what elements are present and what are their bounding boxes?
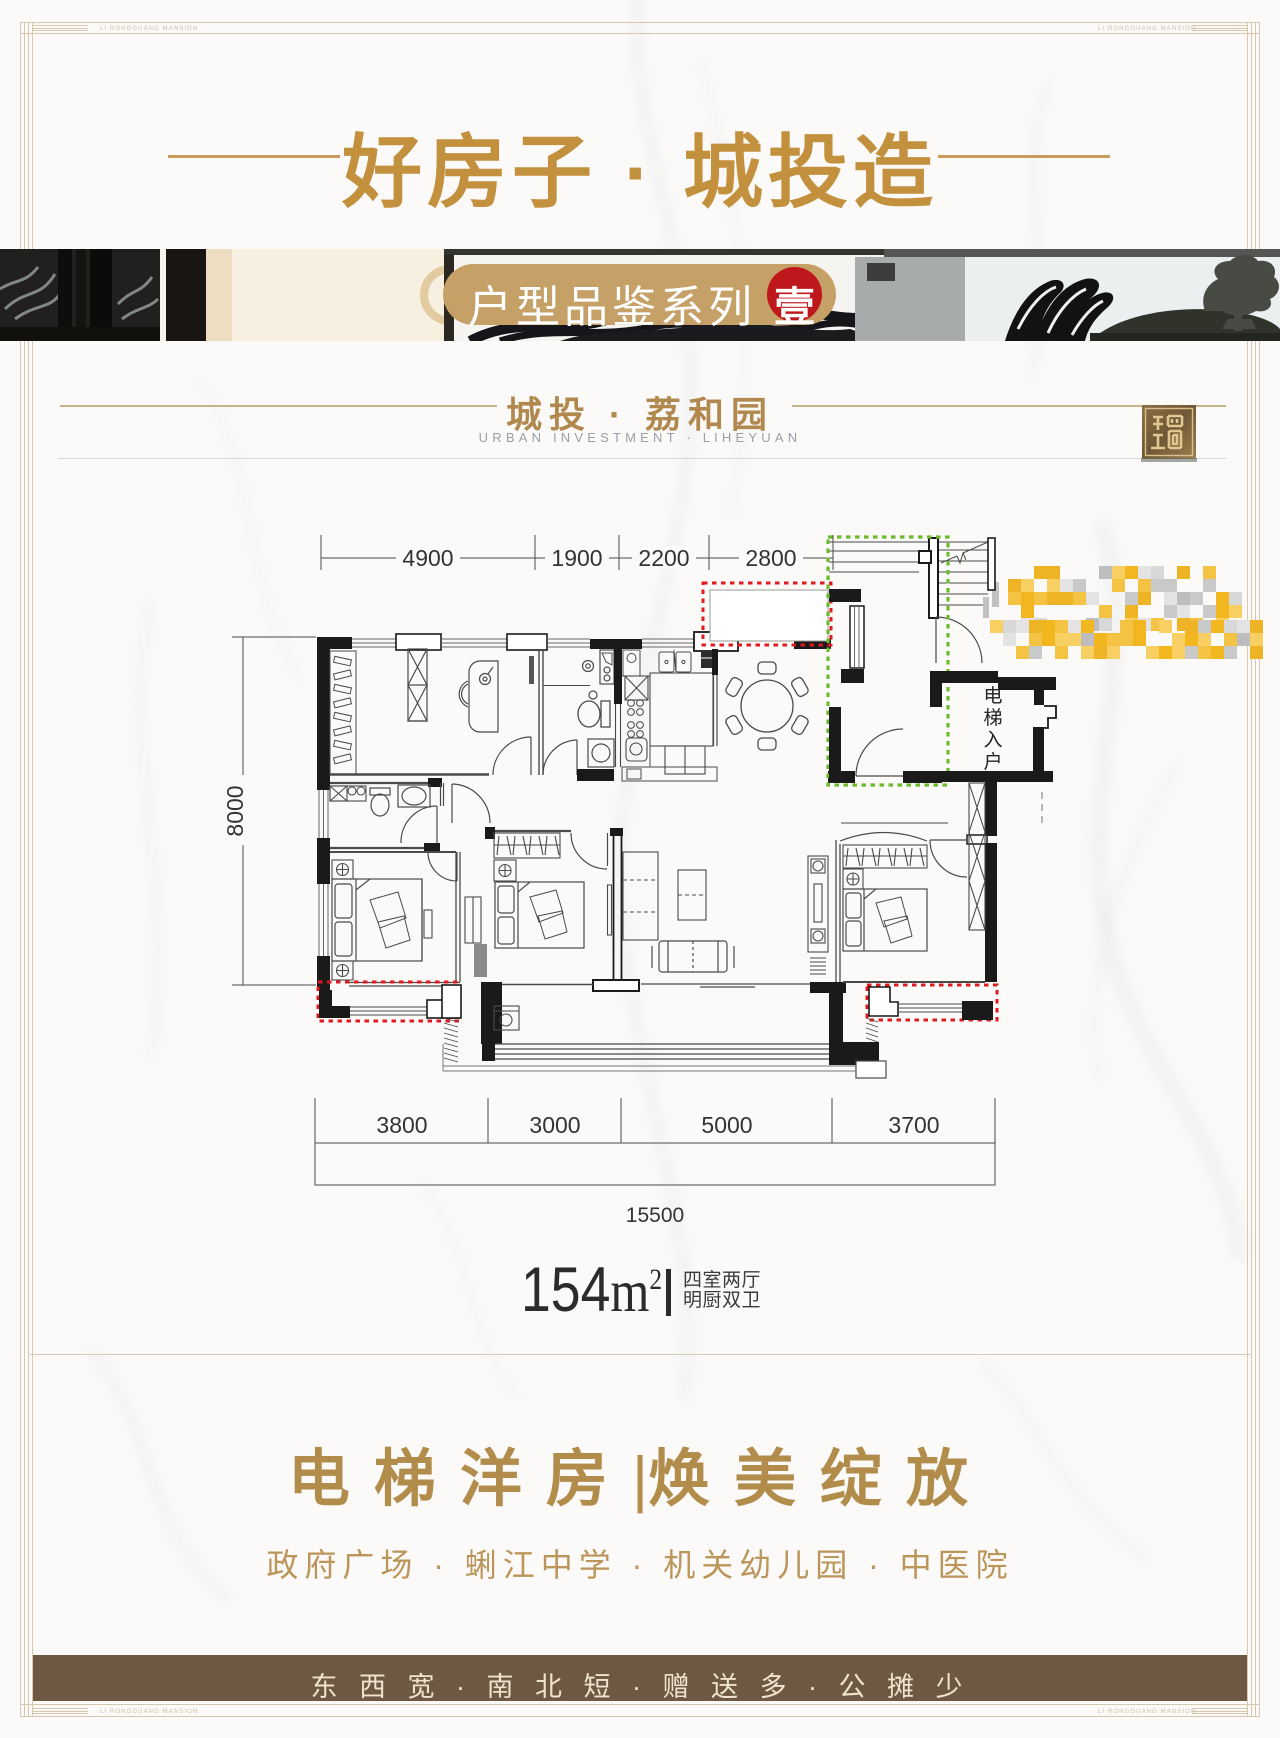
svg-text:户: 户	[983, 751, 1002, 773]
svg-text:3700: 3700	[888, 1112, 939, 1138]
svg-text:1900: 1900	[551, 545, 602, 571]
svg-text:3800: 3800	[376, 1112, 427, 1138]
svg-text:2200: 2200	[638, 545, 689, 571]
svg-text:5000: 5000	[701, 1112, 752, 1138]
svg-text:入: 入	[983, 730, 1002, 751]
svg-text:8000: 8000	[222, 785, 248, 836]
svg-text:LI RONGGUANG MANSION: LI RONGGUANG MANSION	[1098, 26, 1196, 32]
svg-text:电: 电	[983, 685, 1002, 707]
svg-text:2800: 2800	[745, 545, 796, 571]
svg-text:15500: 15500	[626, 1204, 684, 1227]
svg-text:LI RONGGUANG MANSION: LI RONGGUANG MANSION	[100, 1709, 198, 1715]
svg-text:LI RONGGUANG MANSION: LI RONGGUANG MANSION	[100, 26, 198, 32]
svg-text:4900: 4900	[402, 545, 453, 571]
svg-text:梯: 梯	[983, 707, 1002, 729]
svg-text:3000: 3000	[529, 1112, 580, 1138]
svg-text:LI RONGGUANG MANSION: LI RONGGUANG MANSION	[1098, 1709, 1196, 1715]
